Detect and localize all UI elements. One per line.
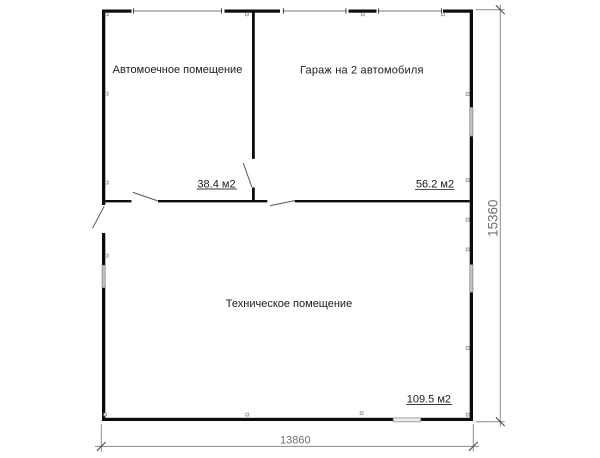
svg-text:56.2 м2: 56.2 м2 [416, 178, 454, 190]
svg-text:109.5 м2: 109.5 м2 [407, 394, 451, 406]
svg-text:Техническое помещение: Техническое помещение [226, 298, 352, 310]
svg-text:13860: 13860 [280, 435, 311, 447]
svg-text:15360: 15360 [486, 200, 501, 237]
svg-text:38.4 м2: 38.4 м2 [197, 178, 235, 190]
svg-text:Автомоечное помещение: Автомоечное помещение [113, 64, 243, 76]
svg-text:Гараж на 2 автомобиля: Гараж на 2 автомобиля [300, 65, 424, 77]
